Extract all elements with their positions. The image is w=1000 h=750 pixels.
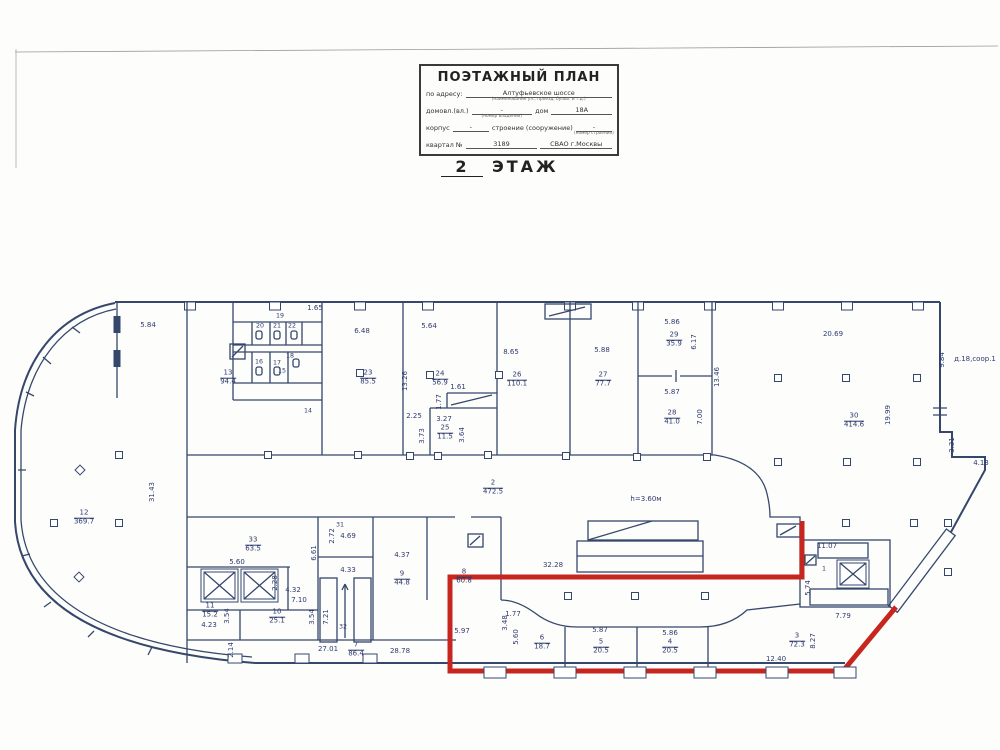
scanned-floor-plan-page: ПОЭТАЖНЫЙ ПЛАН по адресу: Алтуфьевское ш…	[0, 0, 1000, 750]
corridor-walls	[187, 455, 800, 540]
stairwell-1-icon	[800, 540, 890, 607]
staircase-32-icon	[318, 517, 373, 642]
kvartal-label: квартал №	[426, 141, 463, 149]
floor-title: 2 ЭТАЖ	[0, 157, 1000, 177]
district-value: СВАО г.Москвы	[540, 140, 612, 149]
address-label: по адресу:	[426, 90, 463, 98]
address-value: Алтуфьевское шоссе (наименование ул., пр…	[466, 89, 612, 98]
upper-rooms-walls	[114, 302, 713, 663]
kvartal-value: 3189	[466, 140, 538, 149]
wall-pilasters-top	[185, 302, 924, 310]
address-sub-label: (наименование ул., проезд, бульв. и т.д.…	[492, 97, 586, 102]
building-outline	[15, 302, 985, 663]
ownership-sub-label: (номер владения)	[482, 114, 522, 119]
building-row: корпус - строение (сооружение) - (номер …	[426, 123, 612, 132]
floor-word: ЭТАЖ	[492, 157, 559, 176]
ownership-row: домовл.(вл.) - (номер владения) дом 18А	[426, 106, 612, 115]
ownership-label: домовл.(вл.)	[426, 107, 469, 115]
stroenie-value: - (номер строения)	[576, 123, 612, 132]
stroenie-sub-label: (номер строения)	[574, 131, 614, 136]
address-row: по адресу: Алтуфьевское шоссе (наименова…	[426, 89, 612, 98]
escalator-icon	[577, 521, 703, 572]
stroenie-label: строение (сооружение)	[492, 124, 573, 132]
kvartal-row: квартал № 3189 СВАО г.Москвы	[426, 140, 612, 149]
korpus-value: -	[453, 123, 489, 132]
red-unit-interior-walls	[501, 600, 800, 668]
elevator-shaft-icons	[201, 569, 278, 602]
sanitary-block	[230, 322, 322, 400]
wall-pilasters-bottom	[228, 654, 856, 678]
title-block: ПОЭТАЖНЫЙ ПЛАН по адресу: Алтуфьевское ш…	[419, 64, 619, 156]
house-label: дом	[535, 107, 548, 115]
korpus-label: корпус	[426, 124, 450, 132]
house-value: 18А	[551, 106, 612, 115]
ownership-value: - (номер владения)	[472, 106, 533, 115]
toilet-icons	[256, 331, 299, 375]
document-title: ПОЭТАЖНЫЙ ПЛАН	[426, 70, 612, 85]
floor-number: 2	[441, 157, 483, 177]
